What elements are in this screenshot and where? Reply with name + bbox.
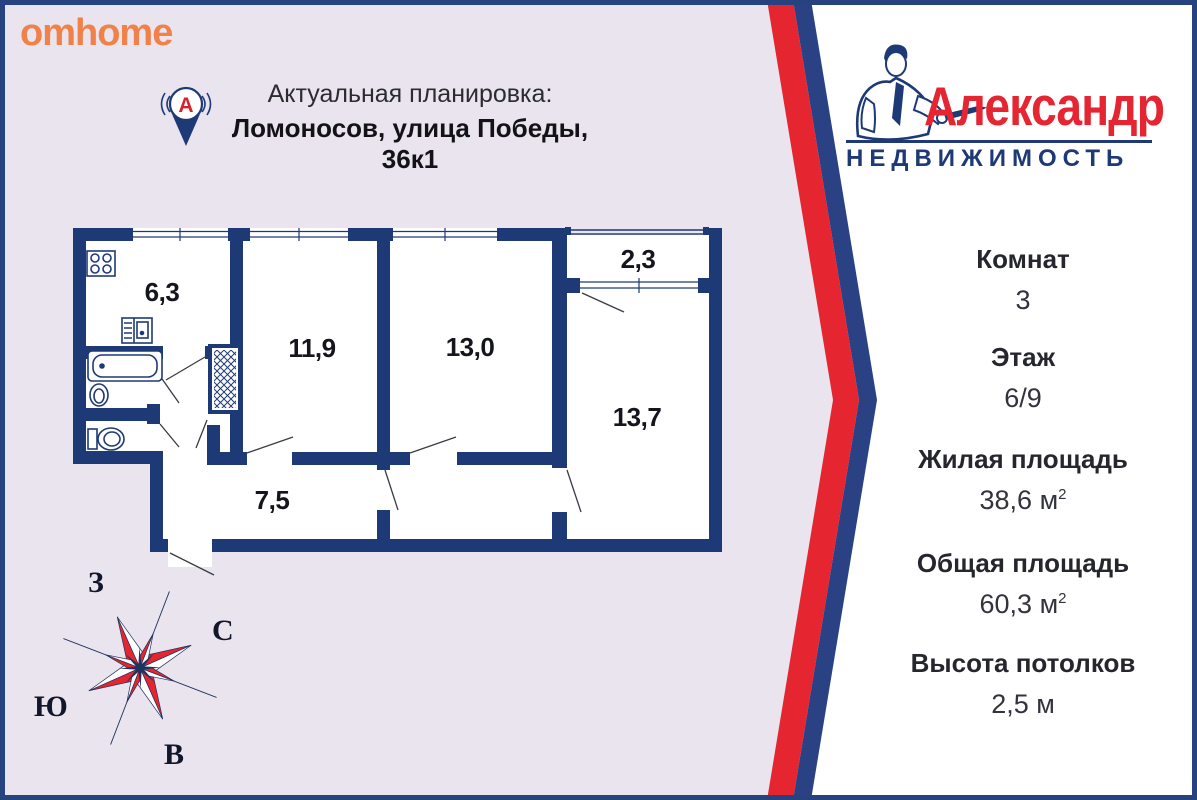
- compass-west-label: З: [88, 566, 104, 600]
- ceiling-value: 2,5 м: [868, 689, 1178, 720]
- pin-letter: А: [178, 94, 193, 117]
- rooms-value: 3: [868, 285, 1178, 316]
- label-room-small: 11,9: [288, 333, 335, 363]
- ceiling-label: Высота потолков: [868, 648, 1178, 679]
- info-living-area: Жилая площадь 38,6 м2: [868, 444, 1178, 516]
- label-room-mid: 13,0: [446, 332, 495, 362]
- info-total-area: Общая площадь 60,3 м2: [868, 548, 1178, 620]
- rooms-label: Комнат: [868, 244, 1178, 275]
- floor-value: 6/9: [868, 383, 1178, 414]
- bathtub-icon: [88, 351, 162, 381]
- info-rooms: Комнат 3: [868, 244, 1178, 316]
- compass-south-label: Ю: [34, 690, 68, 724]
- header: Актуальная планировка: Ломоносов, улица …: [210, 80, 610, 175]
- total-area-value: 60,3 м2: [868, 589, 1178, 620]
- total-area-sup: 2: [1058, 590, 1066, 607]
- living-area-label: Жилая площадь: [868, 444, 1178, 475]
- compass-east-label: В: [164, 738, 184, 772]
- label-balcony: 2,3: [621, 244, 656, 274]
- info-floor: Этаж 6/9: [868, 342, 1178, 414]
- info-ceiling: Высота потолков 2,5 м: [868, 648, 1178, 720]
- header-address: Ломоносов, улица Победы, 36к1: [210, 113, 610, 175]
- balcony-window: [580, 278, 698, 293]
- total-area-label: Общая площадь: [868, 548, 1178, 579]
- floor-label: Этаж: [868, 342, 1178, 373]
- location-pin-icon: А: [162, 88, 211, 146]
- label-kitchen: 6,3: [145, 277, 180, 307]
- label-room-large: 13,7: [613, 402, 662, 432]
- compass-rose: [63, 591, 216, 744]
- total-area-number: 60,3 м: [980, 589, 1059, 619]
- header-title: Актуальная планировка:: [210, 80, 610, 109]
- balcony-railing: [565, 227, 709, 235]
- site-logo: omhome: [20, 12, 172, 55]
- kitchen-sink-icon: [122, 318, 152, 343]
- kitchen-window: [133, 228, 228, 241]
- agency-underline: [846, 140, 1152, 143]
- floor-plan: 6,3 11,9 13,0 2,3 13,7 7,5: [73, 227, 722, 575]
- vent-shaft: [210, 346, 240, 412]
- room-mid-window: [393, 228, 497, 241]
- compass-north-label: С: [212, 614, 234, 648]
- label-hallway: 7,5: [255, 485, 290, 515]
- living-area-value: 38,6 м2: [868, 485, 1178, 516]
- agency-name: Александр: [924, 74, 1164, 138]
- living-area-number: 38,6 м: [980, 485, 1059, 515]
- room-small-window: [250, 228, 348, 241]
- living-area-sup: 2: [1058, 486, 1066, 503]
- washbasin-icon: [90, 384, 108, 406]
- toilet-icon: [88, 428, 124, 450]
- flyer-canvas: 6,3 11,9 13,0 2,3 13,7 7,5: [0, 0, 1197, 800]
- stove-icon: [87, 251, 115, 276]
- agency-subtitle: НЕДВИЖИМОСТЬ: [846, 145, 1129, 173]
